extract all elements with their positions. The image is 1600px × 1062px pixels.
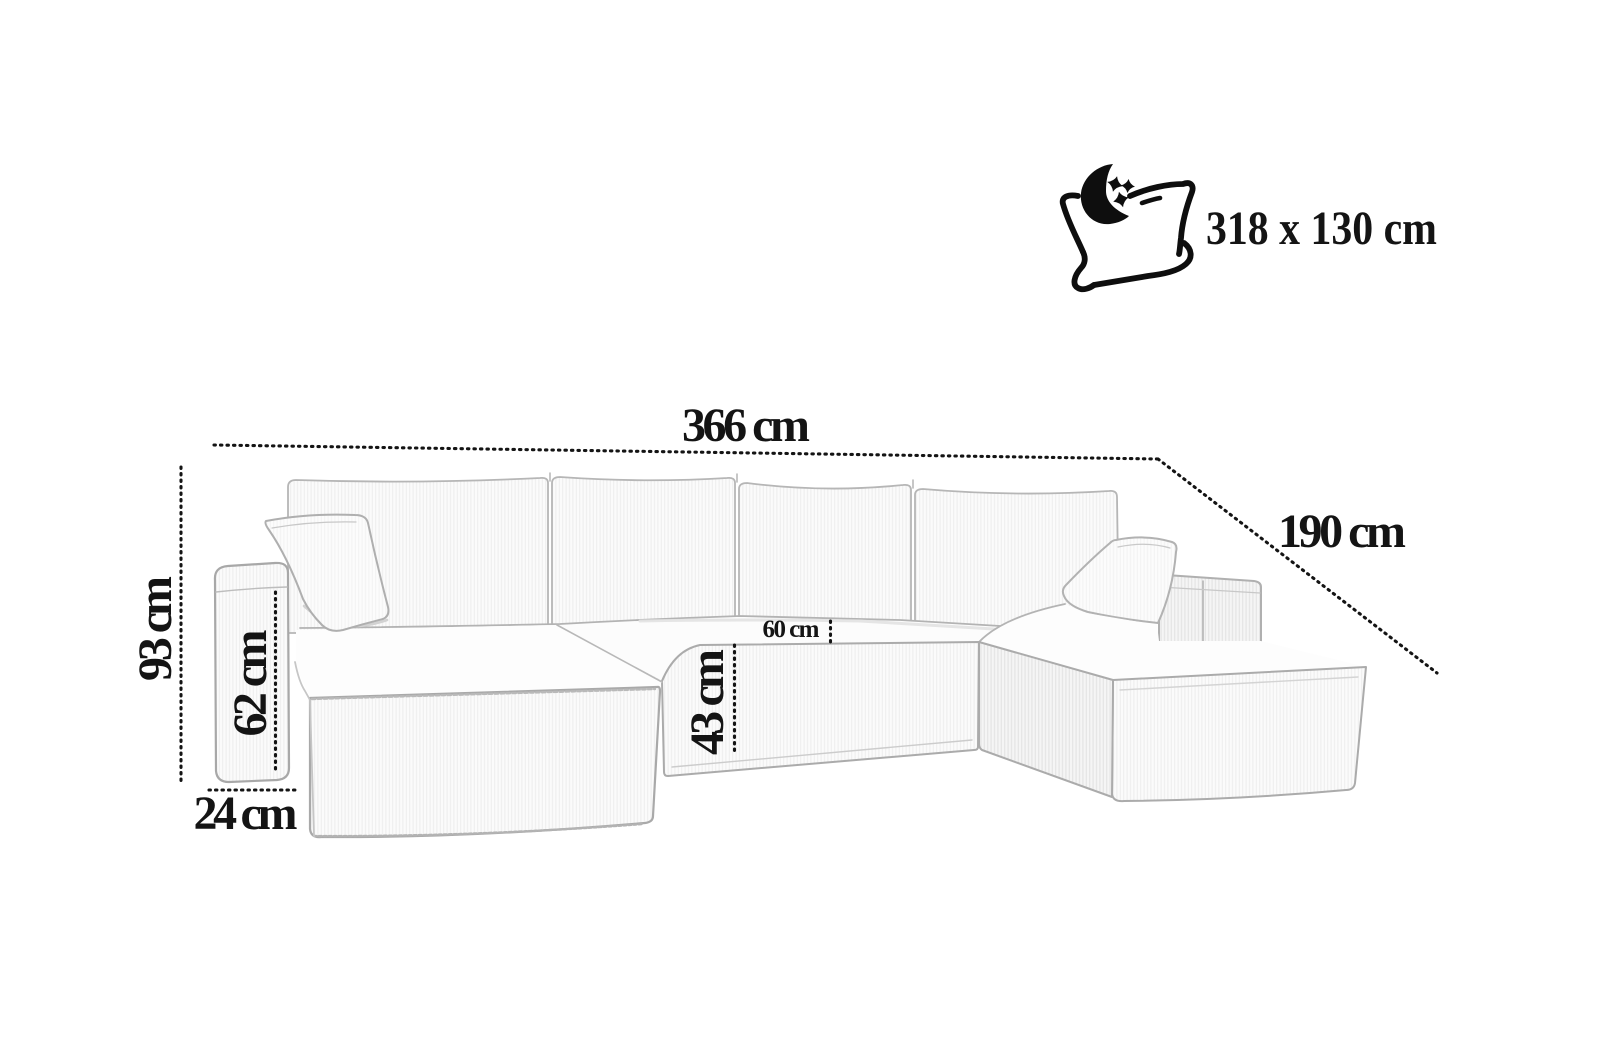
svg-text:93 cm: 93 cm (129, 576, 182, 681)
svg-text:366 cm: 366 cm (682, 399, 810, 452)
svg-text:43 cm: 43 cm (681, 649, 734, 755)
svg-text:62 cm: 62 cm (224, 629, 277, 736)
svg-text:60 cm: 60 cm (763, 616, 820, 643)
svg-text:318 x 130 cm: 318 x 130 cm (1206, 202, 1437, 255)
svg-text:190 cm: 190 cm (1278, 505, 1406, 558)
svg-text:24 cm: 24 cm (194, 787, 298, 840)
